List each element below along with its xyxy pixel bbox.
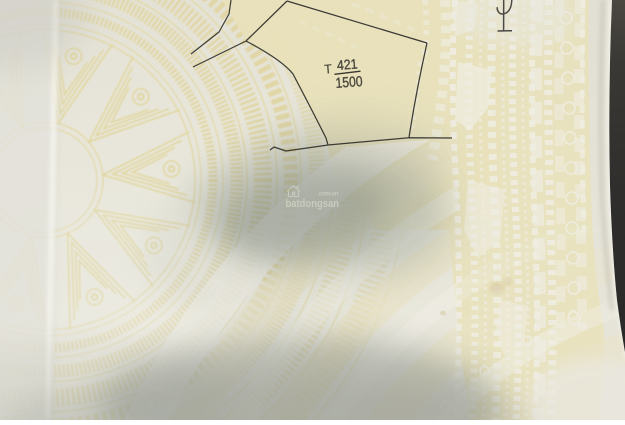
svg-text:T: T [323, 61, 332, 77]
svg-text:batdongsan: batdongsan [286, 198, 340, 210]
svg-text:421: 421 [336, 56, 358, 73]
svg-text:1500: 1500 [335, 74, 363, 92]
svg-text:.com.vn: .com.vn [318, 190, 339, 197]
